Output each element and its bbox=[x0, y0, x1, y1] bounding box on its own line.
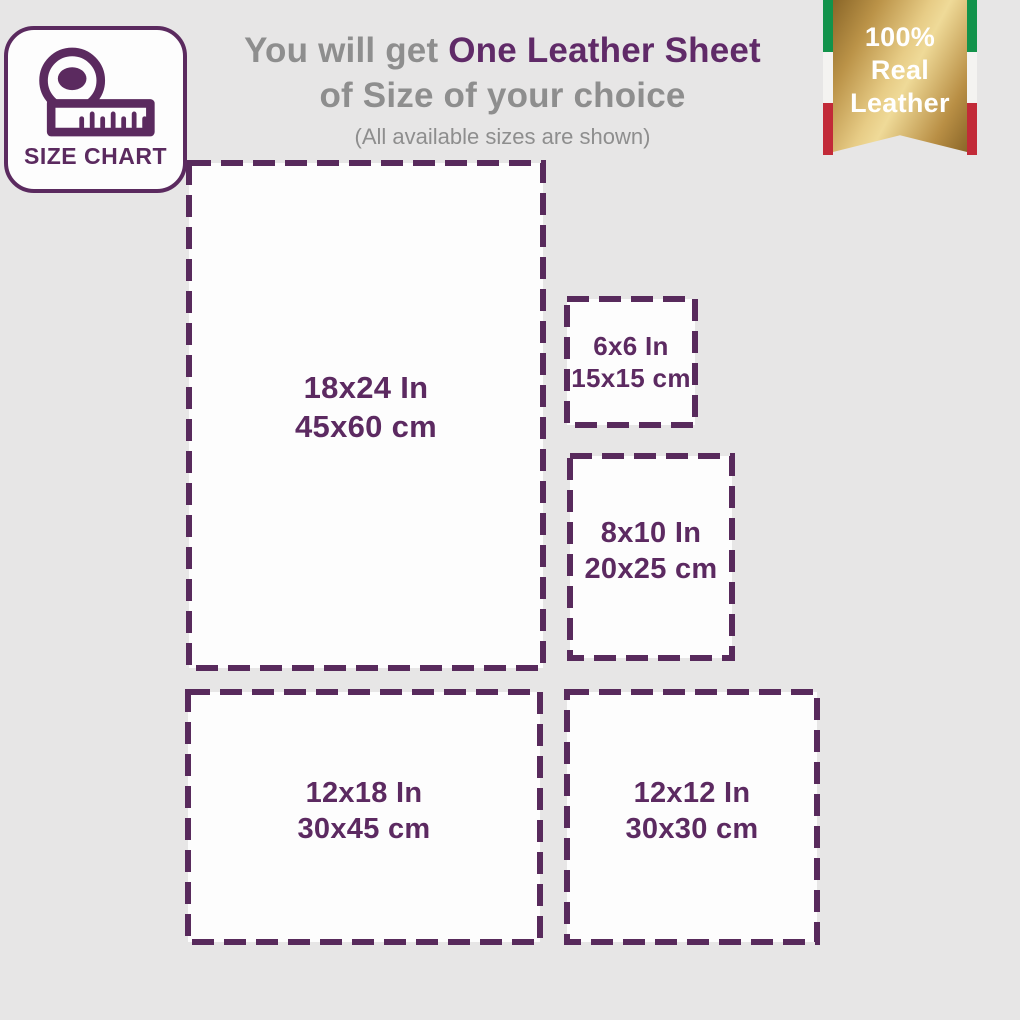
size-cm: 20x25 cm bbox=[584, 552, 717, 588]
ribbon-line-2: Real bbox=[833, 54, 967, 87]
size-box-12x18: 12x18 In 30x45 cm bbox=[185, 689, 543, 945]
size-chart-badge: SIZE CHART bbox=[4, 26, 187, 193]
size-cm: 45x60 cm bbox=[295, 408, 437, 446]
size-label-18x24: 18x24 In 45x60 cm bbox=[186, 160, 546, 671]
size-label-12x12: 12x12 In 30x30 cm bbox=[564, 689, 820, 945]
size-inches: 12x18 In bbox=[306, 776, 423, 812]
ribbon-line-1: 100% bbox=[833, 21, 967, 54]
italian-flag-strip-right bbox=[967, 0, 977, 155]
size-box-8x10: 8x10 In 20x25 cm bbox=[567, 453, 735, 661]
size-label-12x18: 12x18 In 30x45 cm bbox=[185, 689, 543, 945]
heading-line-2: of Size of your choice bbox=[195, 73, 810, 118]
size-inches: 12x12 In bbox=[634, 776, 751, 812]
size-box-18x24: 18x24 In 45x60 cm bbox=[186, 160, 546, 671]
size-cm: 15x15 cm bbox=[571, 362, 691, 394]
gold-banner: 100% Real Leather bbox=[833, 0, 967, 152]
tape-measure-icon bbox=[34, 46, 158, 138]
size-label-6x6: 6x6 In 15x15 cm bbox=[564, 296, 698, 428]
size-cm: 30x45 cm bbox=[297, 812, 430, 848]
size-inches: 6x6 In bbox=[593, 330, 669, 362]
size-cm: 30x30 cm bbox=[625, 812, 758, 848]
size-inches: 8x10 In bbox=[601, 516, 701, 552]
italian-flag-strip-left bbox=[823, 0, 833, 155]
size-label-8x10: 8x10 In 20x25 cm bbox=[567, 453, 735, 661]
size-inches: 18x24 In bbox=[304, 369, 429, 407]
size-box-12x12: 12x12 In 30x30 cm bbox=[564, 689, 820, 945]
heading-prefix: You will get bbox=[244, 31, 448, 70]
heading: You will get One Leather Sheet of Size o… bbox=[195, 28, 810, 150]
badge-label: SIZE CHART bbox=[24, 143, 167, 170]
heading-subtitle: (All available sizes are shown) bbox=[195, 124, 810, 150]
heading-highlight: One Leather Sheet bbox=[448, 31, 761, 70]
size-box-6x6: 6x6 In 15x15 cm bbox=[564, 296, 698, 428]
heading-line-1: You will get One Leather Sheet bbox=[195, 28, 810, 73]
real-leather-ribbon: 100% Real Leather bbox=[823, 0, 977, 156]
ribbon-line-3: Leather bbox=[833, 87, 967, 120]
